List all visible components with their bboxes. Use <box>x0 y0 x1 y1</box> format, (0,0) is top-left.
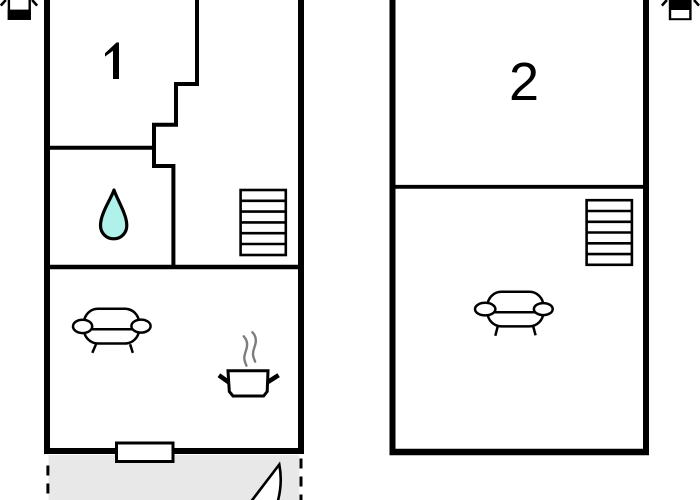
svg-text:2: 2 <box>509 52 539 112</box>
